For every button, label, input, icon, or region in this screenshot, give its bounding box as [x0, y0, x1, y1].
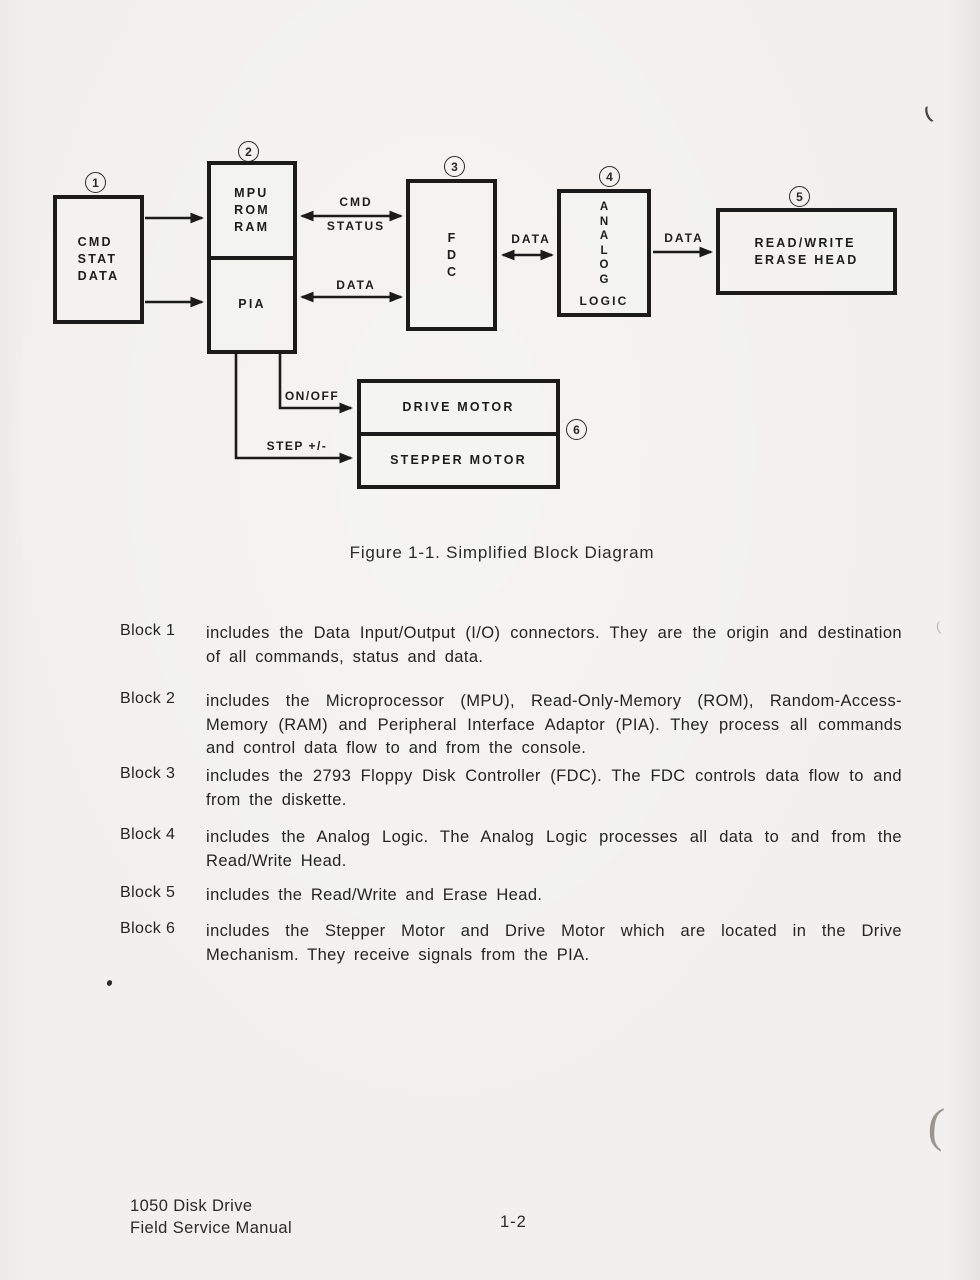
description-block-2: Block 2 includes the Microprocessor (MPU…	[120, 690, 902, 761]
block-read-write-erase-head-label: READ/WRITE ERASE HEAD	[755, 235, 859, 269]
ink-dot-artifact	[106, 979, 113, 987]
description-label: Block 5	[120, 884, 206, 908]
block-fdc-label: F D C	[447, 230, 456, 281]
circled-number-4: 4	[599, 166, 620, 187]
description-block-1: Block 1 includes the Data Input/Output (…	[120, 622, 902, 669]
scan-mark-bottom-right: (	[926, 1098, 946, 1154]
wire-label-data-analog: DATA	[496, 232, 566, 246]
block-mpu-rom-ram: MPU ROM RAM	[211, 165, 293, 260]
description-block-6: Block 6 includes the Stepper Motor and D…	[120, 920, 902, 967]
description-block-3: Block 3 includes the 2793 Floppy Disk Co…	[120, 765, 902, 812]
scan-mark-mid-right: (	[935, 619, 941, 634]
block-cmd-stat-data-label: CMD STAT DATA	[78, 234, 120, 285]
wire-label-on-off: ON/OFF	[267, 389, 357, 403]
block-mpu-pia: MPU ROM RAM PIA	[207, 161, 297, 354]
description-text: includes the 2793 Floppy Disk Controller…	[206, 765, 902, 812]
manual-title-footer: 1050 Disk Drive Field Service Manual	[130, 1195, 292, 1239]
description-label: Block 3	[120, 765, 206, 812]
block-stepper-motor: STEPPER MOTOR	[361, 436, 556, 485]
description-label: Block 4	[120, 826, 206, 873]
block-pia: PIA	[211, 260, 293, 351]
scanned-manual-page: 1 2 3 4 5 6 CMD STAT DATA MPU ROM RAM PI…	[0, 0, 980, 1280]
wire-label-cmd: CMD	[321, 195, 391, 209]
block-logic-label: LOGIC	[580, 294, 629, 308]
description-text: includes the Data Input/Output (I/O) con…	[206, 622, 902, 669]
block-motors: DRIVE MOTOR STEPPER MOTOR	[357, 379, 560, 489]
block-analog-logic: A N A L O G LOGIC	[557, 189, 651, 317]
wire-label-data-pia: DATA	[321, 278, 391, 292]
block-read-write-erase-head: READ/WRITE ERASE HEAD	[716, 208, 897, 295]
block-drive-motor-label: DRIVE MOTOR	[402, 399, 514, 416]
wire-label-data-head: DATA	[649, 231, 719, 245]
description-text: includes the Stepper Motor and Drive Mot…	[206, 920, 902, 967]
description-label: Block 2	[120, 690, 206, 761]
circled-number-6: 6	[566, 419, 587, 440]
description-block-4: Block 4 includes the Analog Logic. The A…	[120, 826, 902, 873]
circled-number-5: 5	[789, 186, 810, 207]
circled-number-2: 2	[238, 141, 259, 162]
wire-label-status: STATUS	[311, 219, 401, 233]
description-text: includes the Microprocessor (MPU), Read-…	[206, 690, 902, 761]
description-label: Block 6	[120, 920, 206, 967]
description-text: includes the Read/Write and Erase Head.	[206, 884, 902, 908]
figure-caption: Figure 1-1. Simplified Block Diagram	[0, 543, 980, 563]
circled-number-1: 1	[85, 172, 106, 193]
circled-number-3: 3	[444, 156, 465, 177]
block-pia-label: PIA	[238, 296, 265, 313]
block-mpu-rom-ram-label: MPU ROM RAM	[234, 185, 270, 236]
block-fdc: F D C	[406, 179, 497, 331]
description-block-5: Block 5 includes the Read/Write and Eras…	[120, 884, 902, 908]
wire-label-step: STEP +/-	[249, 439, 345, 453]
description-text: includes the Analog Logic. The Analog Lo…	[206, 826, 902, 873]
block-stepper-motor-label: STEPPER MOTOR	[390, 452, 527, 469]
block-drive-motor: DRIVE MOTOR	[361, 383, 556, 436]
block-cmd-stat-data: CMD STAT DATA	[53, 195, 144, 324]
description-label: Block 1	[120, 622, 206, 669]
page-number: 1-2	[500, 1213, 527, 1232]
block-analog-vertical-label: A N A L O G	[600, 200, 609, 287]
